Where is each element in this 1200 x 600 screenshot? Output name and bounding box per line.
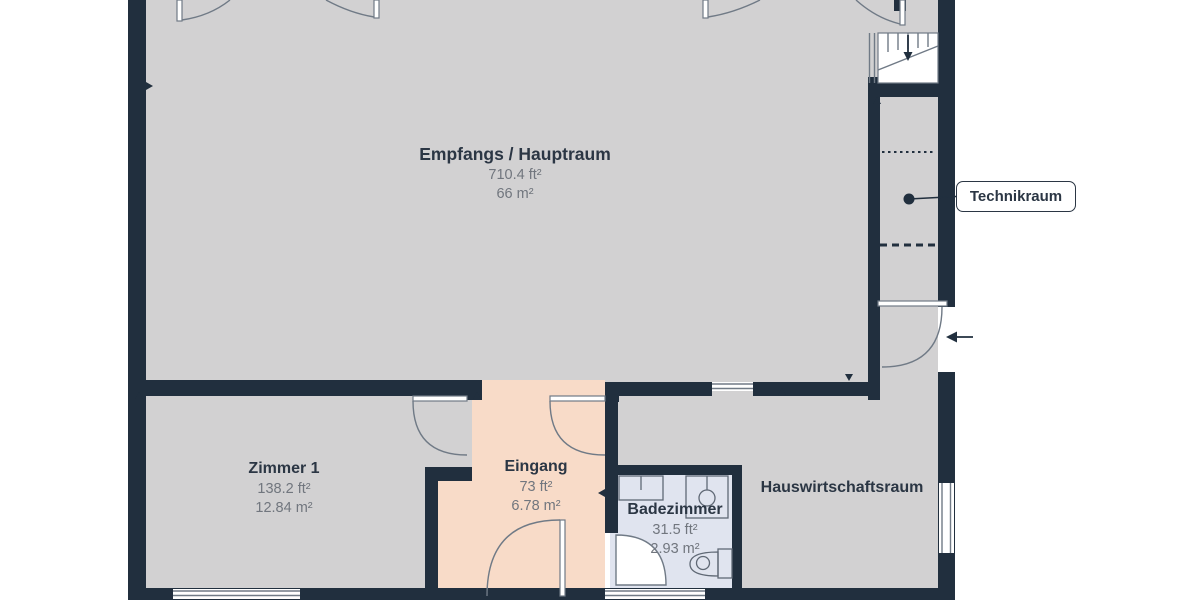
technikraum-left-wall: [868, 77, 880, 400]
entry-direction-arrow-icon: [946, 332, 973, 343]
stairs-bottom-wall: [868, 83, 938, 97]
staircase: [878, 33, 938, 83]
main-dividing-wall: [146, 380, 482, 396]
badezimmer-top-wall: [605, 465, 742, 475]
room-name: Hauswirtschaftsraum: [732, 478, 952, 499]
room-label-main: Empfangs / Hauptraum 710.4 ft² 66 m²: [380, 143, 650, 203]
technikraum-callout: Technikraum: [956, 181, 1076, 212]
technikraum-dot-icon: [904, 194, 915, 205]
room-name: Zimmer 1: [184, 459, 384, 480]
room-area-m: 12.84 m²: [184, 499, 384, 518]
hwr-dividing-wall-right: [753, 382, 880, 396]
left-outer-wall: [128, 0, 146, 600]
room-label-hauswirtschaftsraum: Hauswirtschaftsraum: [732, 478, 952, 499]
window-zimmer1: [173, 589, 300, 599]
room-label-badezimmer: Badezimmer 31.5 ft² 2.93 m²: [595, 500, 755, 558]
room-area-ft: 31.5 ft²: [595, 521, 755, 540]
room-area-ft: 710.4 ft²: [380, 166, 650, 185]
room-name: Eingang: [456, 457, 616, 478]
room-name: Technikraum: [970, 188, 1062, 205]
room-area-m: 66 m²: [380, 185, 650, 204]
room-area-m: 6.78 m²: [456, 497, 616, 516]
floor-plan: Empfangs / Hauptraum 710.4 ft² 66 m² Zim…: [0, 0, 1200, 600]
right-outer-wall-upper: [938, 0, 955, 307]
glazed-partition-main-hwr: [712, 382, 753, 391]
wall-end-cap2: [605, 382, 619, 402]
hwr-dividing-wall-left: [605, 382, 712, 396]
window-badezimmer: [605, 589, 705, 599]
room-label-eingang: Eingang 73 ft² 6.78 m²: [456, 457, 616, 515]
room-area-m: 2.93 m²: [595, 540, 755, 559]
room-name: Badezimmer: [595, 500, 755, 521]
room-area-ft: 73 ft²: [456, 478, 616, 497]
room-label-zimmer1: Zimmer 1 138.2 ft² 12.84 m²: [184, 459, 384, 517]
zimmer1-eingang-wall: [425, 467, 438, 588]
room-area-ft: 138.2 ft²: [184, 480, 384, 499]
room-name: Empfangs / Hauptraum: [380, 143, 650, 166]
